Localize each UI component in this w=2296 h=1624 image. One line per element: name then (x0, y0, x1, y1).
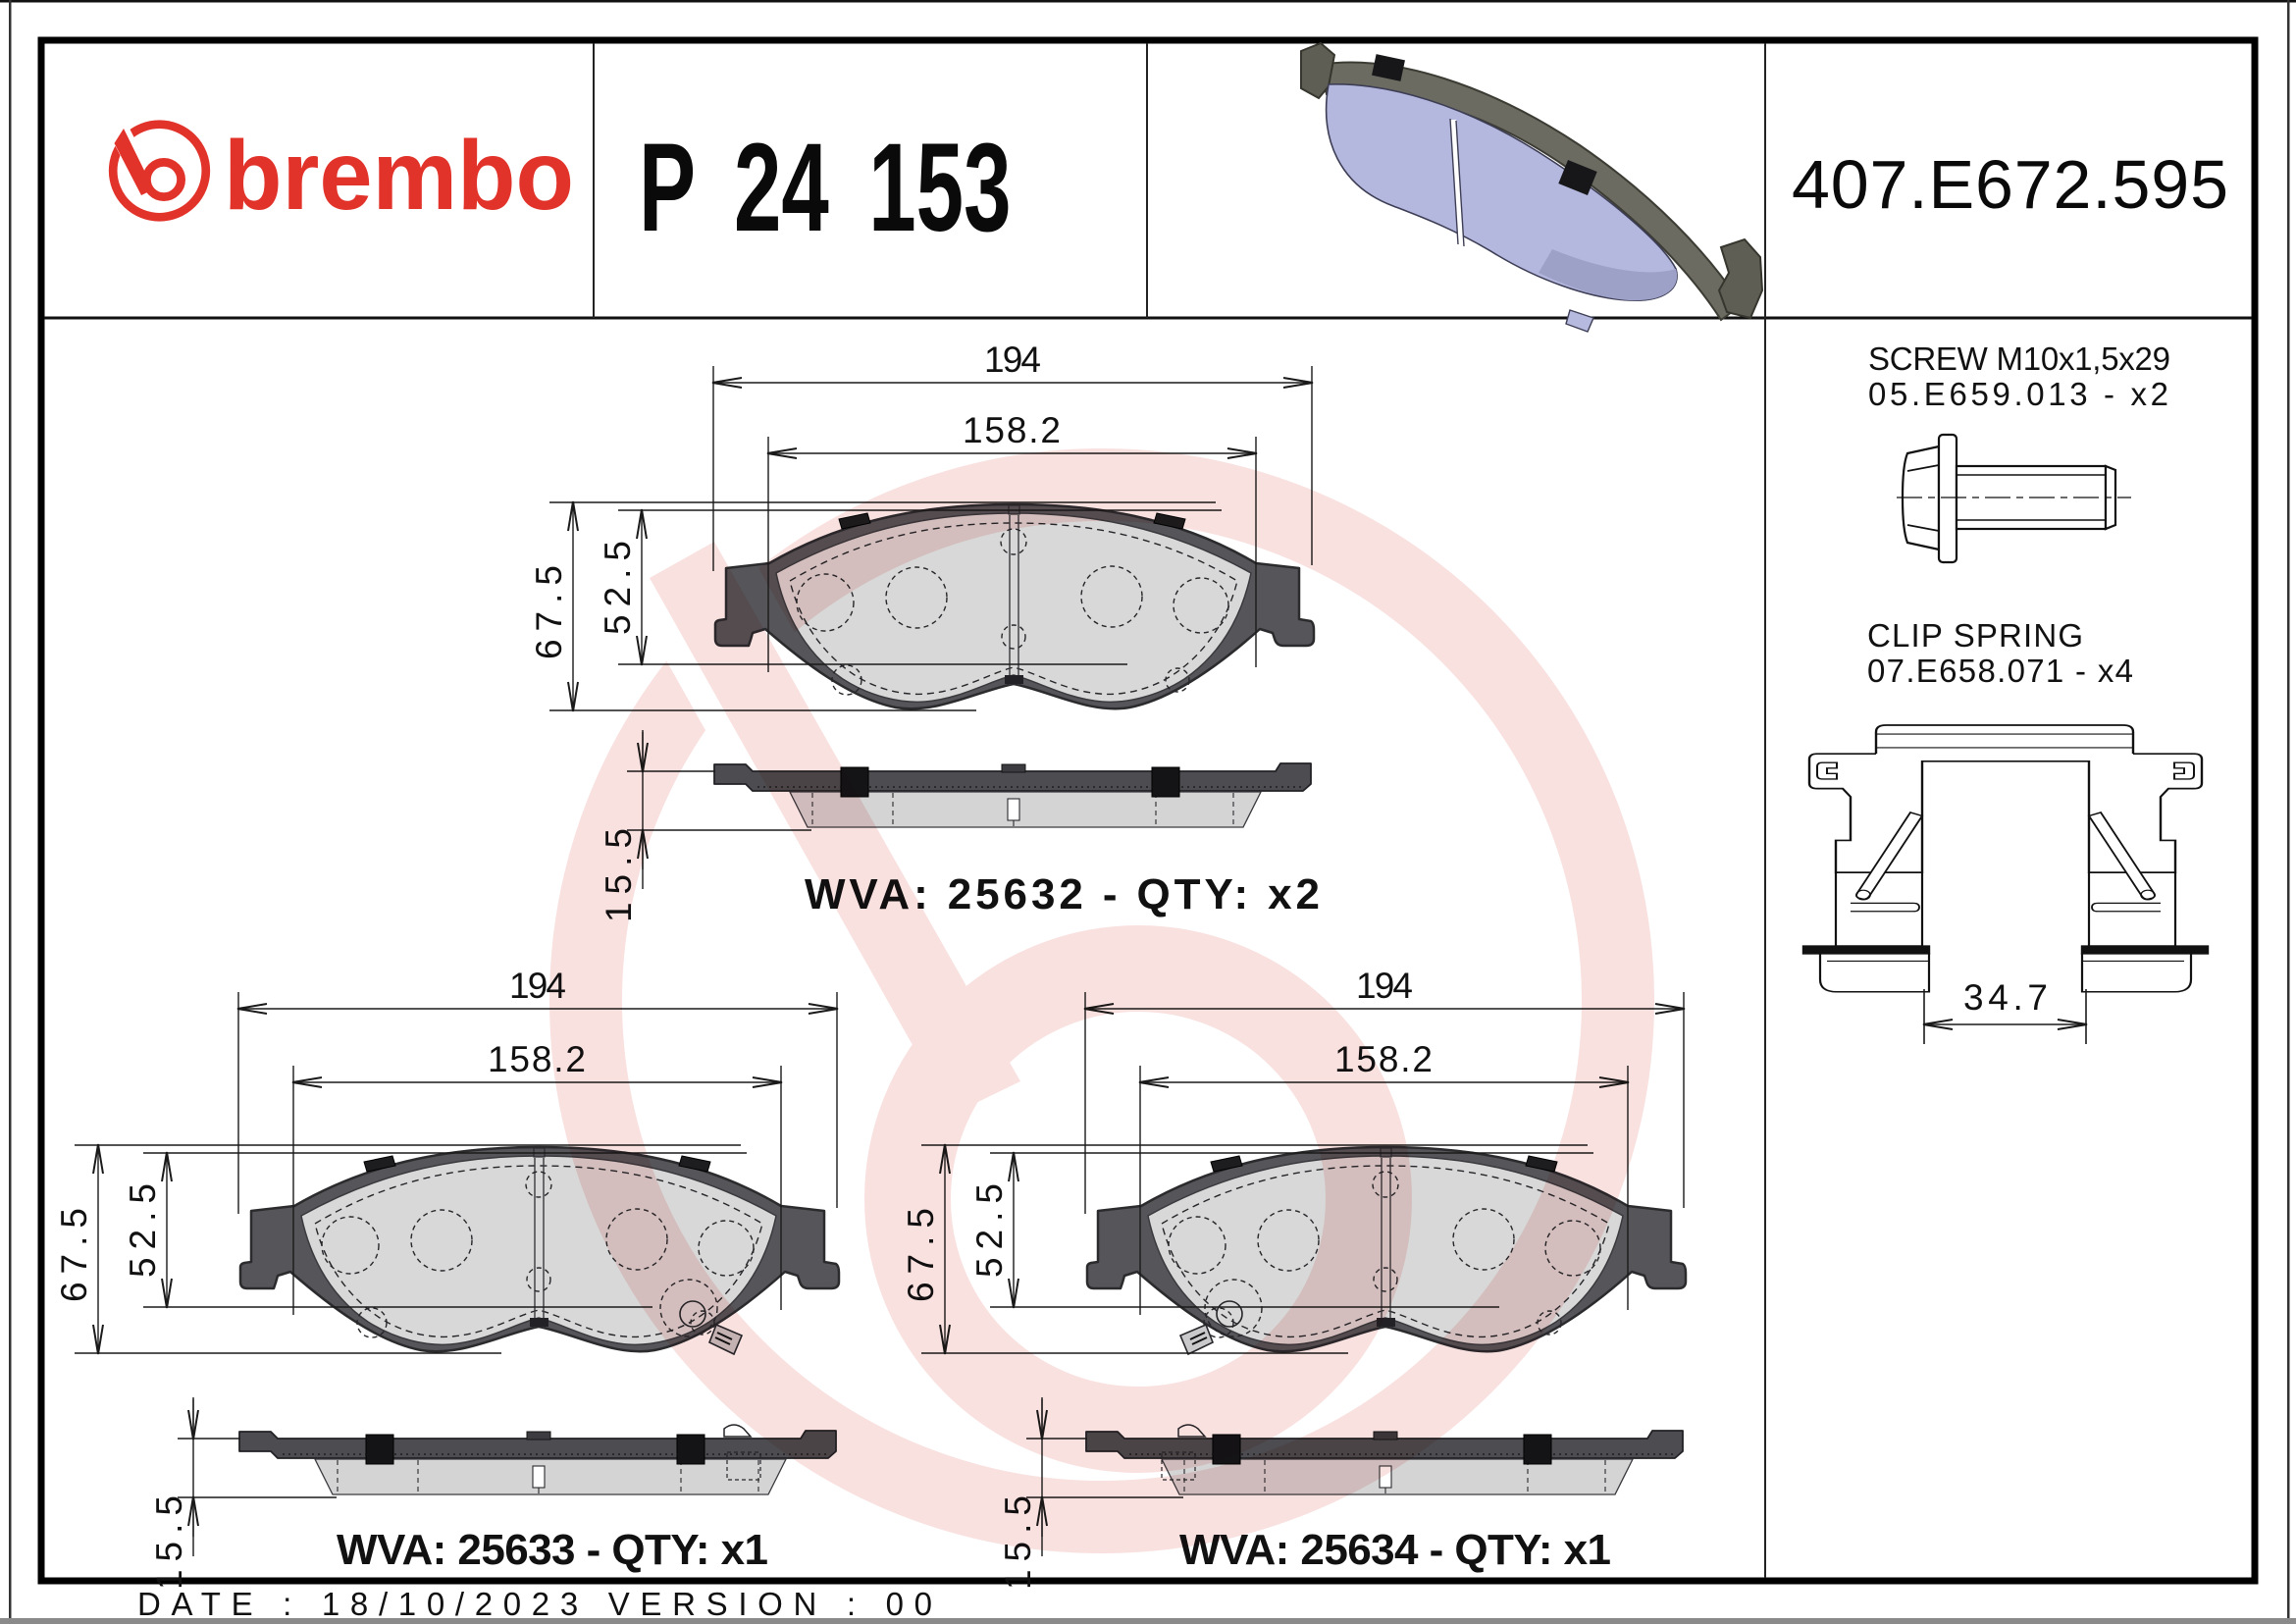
svg-text:52.5: 52.5 (123, 1183, 163, 1278)
svg-text:CLIP SPRING: CLIP SPRING (1867, 617, 2083, 654)
svg-text:194: 194 (984, 340, 1041, 380)
svg-text:brembo: brembo (224, 121, 574, 231)
svg-text:194: 194 (1356, 966, 1413, 1006)
svg-text:158.2: 158.2 (963, 410, 1061, 450)
svg-text:15.5: 15.5 (149, 1495, 189, 1590)
svg-text:SCREW M10x1,5x29: SCREW M10x1,5x29 (1868, 341, 2170, 377)
svg-text:52.5: 52.5 (969, 1183, 1010, 1278)
svg-text:P 24 153: P 24 153 (639, 118, 1011, 258)
svg-text:WVA: 25633 - QTY: x1: WVA: 25633 - QTY: x1 (337, 1526, 768, 1574)
svg-text:67.5: 67.5 (54, 1208, 94, 1302)
svg-text:34.7: 34.7 (1963, 977, 2048, 1018)
svg-text:DATE : 18/10/2023 VERSION : 00: DATE : 18/10/2023 VERSION : 00 (137, 1586, 932, 1622)
svg-text:07.E658.071 - x4: 07.E658.071 - x4 (1867, 653, 2133, 689)
svg-text:407.E672.595: 407.E672.595 (1792, 146, 2228, 223)
svg-text:67.5: 67.5 (529, 565, 569, 659)
svg-text:05.E659.013 - x2: 05.E659.013 - x2 (1868, 376, 2168, 412)
